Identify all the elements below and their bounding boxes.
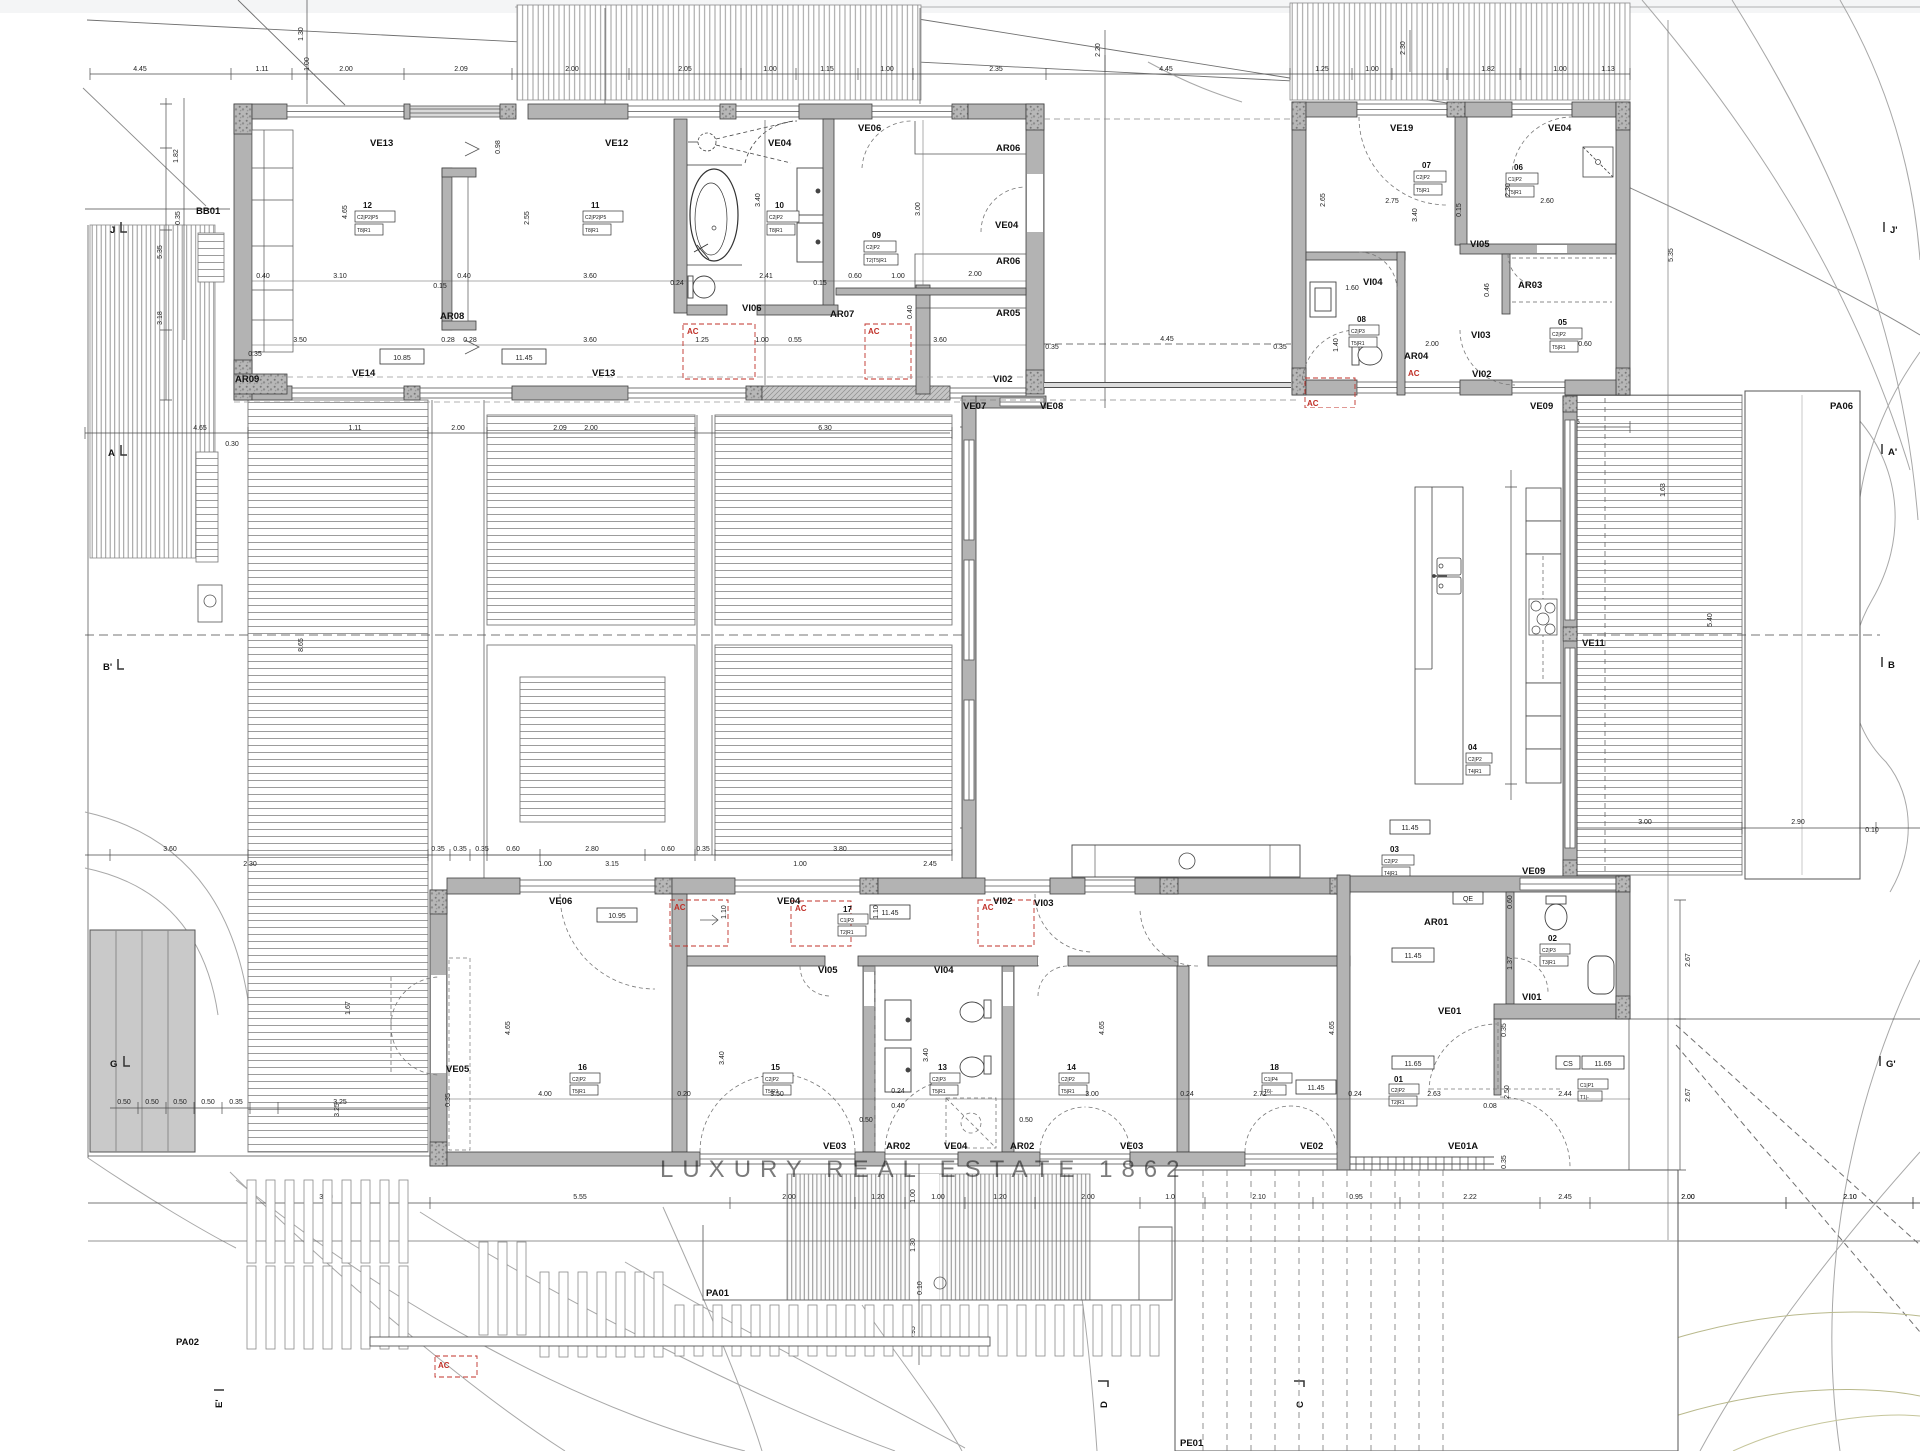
svg-text:0.50: 0.50 — [201, 1099, 215, 1106]
svg-text:T5|R1: T5|R1 — [1416, 188, 1430, 194]
svg-text:1.00: 1.00 — [1553, 66, 1567, 73]
svg-text:3.80: 3.80 — [833, 846, 847, 853]
svg-text:VE01: VE01 — [1438, 1006, 1462, 1017]
svg-text:0.35: 0.35 — [1501, 1023, 1508, 1037]
svg-text:T5|R1: T5|R1 — [572, 1089, 586, 1095]
svg-text:3.60: 3.60 — [163, 846, 177, 853]
svg-text:C2|P2: C2|P2 — [1391, 1088, 1405, 1094]
svg-text:11.45: 11.45 — [1308, 1085, 1325, 1092]
svg-text:1.67: 1.67 — [345, 1001, 352, 1015]
svg-text:VE06: VE06 — [858, 123, 881, 134]
svg-text:4.45: 4.45 — [1160, 336, 1174, 343]
svg-text:AC: AC — [687, 327, 699, 336]
svg-text:2.90: 2.90 — [1791, 819, 1805, 826]
svg-text:AC: AC — [438, 1361, 450, 1370]
svg-text:2.45: 2.45 — [1558, 1194, 1572, 1201]
svg-text:2.00: 2.00 — [584, 425, 598, 432]
svg-text:15: 15 — [771, 1063, 780, 1072]
svg-text:4.65: 4.65 — [1329, 1021, 1336, 1035]
svg-text:VE07: VE07 — [963, 401, 986, 412]
svg-text:AR07: AR07 — [830, 309, 854, 320]
svg-text:8.65: 8.65 — [298, 638, 305, 652]
svg-text:0.60: 0.60 — [661, 846, 675, 853]
svg-text:18: 18 — [1270, 1063, 1279, 1072]
svg-text:2.09: 2.09 — [553, 425, 567, 432]
svg-text:2.41: 2.41 — [759, 273, 773, 280]
svg-text:B: B — [1888, 660, 1895, 671]
svg-text:AR01: AR01 — [1424, 917, 1449, 928]
svg-text:2.80: 2.80 — [585, 846, 599, 853]
svg-text:J: J — [110, 225, 115, 236]
svg-text:1.82: 1.82 — [173, 149, 180, 163]
svg-text:C2|P2: C2|P2 — [572, 1077, 586, 1083]
svg-text:VI04: VI04 — [1363, 277, 1383, 288]
svg-text:2.35: 2.35 — [989, 66, 1003, 73]
svg-text:1.00: 1.00 — [763, 66, 777, 73]
svg-text:0.24: 0.24 — [1348, 1091, 1362, 1098]
svg-text:2.00: 2.00 — [451, 425, 465, 432]
svg-text:J': J' — [1890, 225, 1898, 236]
svg-text:C2|P2: C2|P2 — [1384, 859, 1398, 865]
svg-text:0.28: 0.28 — [463, 337, 477, 344]
svg-text:0.40: 0.40 — [256, 273, 270, 280]
svg-text:10.95: 10.95 — [608, 913, 626, 920]
svg-text:T4|R1: T4|R1 — [1468, 769, 1482, 775]
svg-text:12: 12 — [363, 201, 372, 210]
svg-text:T2|R1: T2|R1 — [1391, 1100, 1405, 1106]
svg-text:1.00: 1.00 — [1365, 66, 1379, 73]
svg-text:VE01A: VE01A — [1448, 1141, 1478, 1152]
svg-text:3.40: 3.40 — [923, 1048, 930, 1062]
svg-text:0.15: 0.15 — [813, 280, 827, 287]
svg-text:VI02: VI02 — [993, 896, 1013, 907]
svg-text:C2|P2: C2|P2 — [1468, 757, 1482, 763]
svg-text:0.60: 0.60 — [1507, 895, 1514, 909]
svg-text:T5|R1: T5|R1 — [932, 1089, 946, 1095]
svg-text:VI03: VI03 — [1471, 330, 1491, 341]
svg-text:T5|R1: T5|R1 — [1061, 1089, 1075, 1095]
svg-text:6.30: 6.30 — [818, 425, 832, 432]
svg-text:AR02: AR02 — [886, 1141, 910, 1152]
svg-text:C1|P4: C1|P4 — [1264, 1077, 1278, 1083]
svg-text:T2|T5|R1: T2|T5|R1 — [866, 258, 887, 264]
svg-text:3.40: 3.40 — [719, 1051, 726, 1065]
svg-text:3.10: 3.10 — [333, 273, 347, 280]
svg-text:3.00: 3.00 — [915, 202, 922, 216]
svg-text:0.60: 0.60 — [1578, 341, 1592, 348]
svg-text:VE03: VE03 — [1120, 1141, 1143, 1152]
svg-text:2.67: 2.67 — [1685, 1088, 1692, 1102]
svg-text:C2|P2: C2|P2 — [769, 215, 783, 221]
svg-text:VI05: VI05 — [1470, 239, 1490, 250]
svg-text:1.10: 1.10 — [721, 905, 728, 919]
svg-text:11.45: 11.45 — [1405, 953, 1422, 960]
svg-text:4.45: 4.45 — [133, 66, 147, 73]
svg-text:T3|R1: T3|R1 — [1542, 960, 1556, 966]
svg-text:3.60: 3.60 — [583, 273, 597, 280]
svg-text:0.08: 0.08 — [1483, 1103, 1497, 1110]
svg-text:0.40: 0.40 — [891, 1103, 905, 1110]
svg-text:T5|R1: T5|R1 — [1351, 341, 1365, 347]
svg-text:0.35: 0.35 — [453, 846, 467, 853]
svg-text:07: 07 — [1422, 161, 1431, 170]
svg-text:11.65: 11.65 — [1405, 1061, 1422, 1068]
svg-text:C2|P3: C2|P3 — [1351, 329, 1365, 335]
svg-text:VE04: VE04 — [995, 220, 1019, 231]
svg-text:0.10: 0.10 — [1865, 827, 1879, 834]
svg-text:AR08: AR08 — [440, 311, 464, 322]
svg-text:0.50: 0.50 — [145, 1099, 159, 1106]
svg-text:2.00: 2.00 — [968, 271, 982, 278]
svg-text:2.63: 2.63 — [1427, 1091, 1441, 1098]
svg-text:2.10: 2.10 — [1843, 1194, 1857, 1201]
svg-text:4.65: 4.65 — [342, 205, 349, 219]
svg-text:VE02: VE02 — [1300, 1141, 1323, 1152]
svg-text:0.28: 0.28 — [441, 337, 455, 344]
svg-text:11.65: 11.65 — [1595, 1061, 1612, 1068]
svg-text:C1|P1: C1|P1 — [1580, 1083, 1594, 1089]
svg-text:3.50: 3.50 — [770, 1091, 784, 1098]
svg-text:AC: AC — [982, 903, 994, 912]
svg-text:0.35: 0.35 — [1045, 344, 1059, 351]
svg-text:VE09: VE09 — [1522, 866, 1545, 877]
svg-text:1.20: 1.20 — [871, 1194, 885, 1201]
svg-text:1.25: 1.25 — [695, 337, 709, 344]
svg-text:0.55: 0.55 — [788, 337, 802, 344]
svg-text:2.50: 2.50 — [1504, 1085, 1511, 1099]
svg-text:VE11: VE11 — [1582, 638, 1605, 649]
svg-text:0.60: 0.60 — [506, 846, 520, 853]
svg-text:1.00: 1.00 — [755, 337, 769, 344]
svg-text:VE03: VE03 — [823, 1141, 846, 1152]
svg-text:1.00: 1.00 — [538, 861, 552, 868]
svg-text:1.11: 1.11 — [255, 66, 268, 73]
svg-text:2.55: 2.55 — [524, 211, 531, 225]
svg-text:AR03: AR03 — [1518, 280, 1542, 291]
svg-text:0.24: 0.24 — [1180, 1091, 1194, 1098]
svg-text:A: A — [108, 448, 115, 459]
svg-text:C2|P3: C2|P3 — [1542, 948, 1556, 954]
svg-text:2.30: 2.30 — [1400, 41, 1407, 55]
svg-text:2.00: 2.00 — [782, 1194, 796, 1201]
svg-text:C2|P2: C2|P2 — [1061, 1077, 1075, 1083]
svg-text:0.35: 0.35 — [1273, 344, 1287, 351]
svg-text:AR05: AR05 — [996, 308, 1021, 319]
svg-text:VI02: VI02 — [993, 374, 1013, 385]
svg-text:11.45: 11.45 — [1402, 825, 1419, 832]
svg-text:0.50: 0.50 — [859, 1117, 873, 1124]
svg-text:VI02: VI02 — [1472, 369, 1492, 380]
svg-text:VE04: VE04 — [768, 138, 792, 149]
svg-text:VE04: VE04 — [944, 1141, 968, 1152]
svg-text:C2|P2|P5: C2|P2|P5 — [357, 215, 378, 221]
svg-text:VE08: VE08 — [1040, 401, 1063, 412]
svg-text:0.20: 0.20 — [677, 1091, 691, 1098]
svg-text:AR04: AR04 — [1404, 351, 1429, 362]
svg-text:0.30: 0.30 — [225, 441, 239, 448]
svg-text:17: 17 — [843, 905, 852, 914]
svg-text:2.00: 2.00 — [565, 66, 579, 73]
svg-text:0.15: 0.15 — [1456, 203, 1463, 217]
svg-text:10: 10 — [775, 201, 784, 210]
svg-text:2.30: 2.30 — [243, 861, 257, 868]
svg-text:VE04: VE04 — [1548, 123, 1572, 134]
svg-text:2.00: 2.00 — [339, 66, 353, 73]
svg-text:1.60: 1.60 — [1345, 285, 1359, 292]
svg-text:PA06: PA06 — [1830, 401, 1853, 412]
svg-text:2.72: 2.72 — [1253, 1091, 1267, 1098]
svg-text:0.98: 0.98 — [495, 140, 502, 154]
svg-text:4.00: 4.00 — [538, 1091, 552, 1098]
svg-text:3.50: 3.50 — [293, 337, 307, 344]
svg-text:1.00: 1.00 — [891, 273, 905, 280]
svg-text:T8|R1: T8|R1 — [769, 228, 783, 234]
svg-text:3.00: 3.00 — [1638, 819, 1652, 826]
svg-text:4.45: 4.45 — [1159, 66, 1173, 73]
svg-text:2.00: 2.00 — [1081, 1194, 1095, 1201]
svg-text:T5|R1: T5|R1 — [1552, 345, 1566, 351]
svg-text:0.35: 0.35 — [696, 846, 710, 853]
svg-text:1.37: 1.37 — [1507, 956, 1514, 970]
svg-text:C2|P2: C2|P2 — [765, 1077, 779, 1083]
svg-text:2.00: 2.00 — [1425, 341, 1439, 348]
svg-text:0.35: 0.35 — [445, 1093, 452, 1107]
svg-text:0.15: 0.15 — [433, 283, 447, 290]
svg-text:BB01: BB01 — [196, 206, 221, 217]
svg-text:PA02: PA02 — [176, 1337, 199, 1348]
svg-text:0.40: 0.40 — [907, 305, 914, 319]
svg-text:06: 06 — [1514, 163, 1523, 172]
svg-text:3.25: 3.25 — [334, 1103, 341, 1117]
svg-text:1.30: 1.30 — [910, 1238, 917, 1252]
svg-text:2.65: 2.65 — [1320, 193, 1327, 207]
svg-text:T8|R1: T8|R1 — [357, 228, 371, 234]
svg-text:3.40: 3.40 — [755, 193, 762, 207]
svg-text:A': A' — [1888, 447, 1897, 458]
svg-text:VI06: VI06 — [742, 303, 762, 314]
svg-text:2.75: 2.75 — [1385, 198, 1399, 205]
svg-text:3.40: 3.40 — [1412, 208, 1419, 222]
svg-text:C2|P3: C2|P3 — [932, 1077, 946, 1083]
svg-text:B': B' — [103, 662, 112, 673]
svg-text:2.60: 2.60 — [1540, 198, 1554, 205]
svg-text:AR02: AR02 — [1010, 1141, 1034, 1152]
svg-text:C2|P2|P5: C2|P2|P5 — [585, 215, 606, 221]
svg-text:1.00: 1.00 — [880, 66, 894, 73]
svg-text:3.60: 3.60 — [583, 337, 597, 344]
svg-text:0.46: 0.46 — [1484, 283, 1491, 297]
svg-text:1.20: 1.20 — [993, 1194, 1007, 1201]
svg-text:5.55: 5.55 — [573, 1194, 587, 1201]
svg-text:AR06: AR06 — [996, 256, 1020, 267]
svg-text:0.24: 0.24 — [670, 280, 684, 287]
svg-text:11.45: 11.45 — [882, 910, 899, 917]
svg-text:3.60: 3.60 — [933, 337, 947, 344]
svg-text:VE13: VE13 — [370, 138, 393, 149]
svg-text:0.40: 0.40 — [457, 273, 471, 280]
svg-text:C1|P3: C1|P3 — [840, 918, 854, 924]
svg-text:3.00: 3.00 — [1085, 1091, 1099, 1098]
svg-text:CS: CS — [1563, 1061, 1573, 1068]
svg-text:0.35: 0.35 — [248, 351, 262, 358]
svg-text:E': E' — [214, 1399, 225, 1408]
svg-text:2.22: 2.22 — [1463, 1194, 1477, 1201]
svg-text:1.00: 1.00 — [304, 57, 311, 71]
svg-text:QE: QE — [1463, 896, 1473, 903]
svg-text:09: 09 — [872, 231, 881, 240]
svg-text:0.35: 0.35 — [431, 846, 445, 853]
svg-text:VE04: VE04 — [777, 896, 801, 907]
svg-text:VI03: VI03 — [1034, 898, 1054, 909]
svg-text:2.30: 2.30 — [1505, 183, 1512, 197]
svg-text:0.24: 0.24 — [891, 1088, 905, 1095]
svg-text:AC: AC — [1408, 369, 1420, 378]
svg-text:13: 13 — [938, 1063, 947, 1072]
svg-text:2.20: 2.20 — [1095, 43, 1102, 57]
svg-text:VI05: VI05 — [818, 965, 838, 976]
svg-text:1.82: 1.82 — [1481, 66, 1495, 73]
svg-text:1.25: 1.25 — [1315, 66, 1329, 73]
svg-text:04: 04 — [1468, 743, 1477, 752]
svg-text:0.50: 0.50 — [1019, 1117, 1033, 1124]
svg-text:1.15: 1.15 — [820, 66, 834, 73]
svg-text:LUXURY REAL ESTATE 1862: LUXURY REAL ESTATE 1862 — [660, 1156, 1188, 1183]
svg-text:1.00: 1.00 — [793, 861, 807, 868]
svg-text:T1|-: T1|- — [1580, 1095, 1589, 1101]
svg-text:C2|P2: C2|P2 — [1552, 332, 1566, 338]
svg-text:PE01: PE01 — [1180, 1438, 1204, 1449]
svg-text:AC: AC — [1307, 399, 1319, 408]
svg-text:2.44: 2.44 — [1558, 1091, 1572, 1098]
svg-text:1.00: 1.00 — [931, 1194, 945, 1201]
svg-text:0.95: 0.95 — [1349, 1194, 1363, 1201]
svg-text:VE06: VE06 — [549, 896, 572, 907]
svg-text:5.35: 5.35 — [1668, 248, 1675, 262]
svg-text:2.00: 2.00 — [1681, 1194, 1695, 1201]
svg-text:VI01: VI01 — [1522, 992, 1542, 1003]
svg-text:5.35: 5.35 — [157, 245, 164, 259]
svg-text:14: 14 — [1067, 1063, 1076, 1072]
svg-text:0.35: 0.35 — [175, 211, 182, 225]
svg-text:PA01: PA01 — [706, 1288, 730, 1299]
svg-text:G': G' — [1886, 1059, 1896, 1070]
svg-text:3.18: 3.18 — [157, 311, 164, 325]
svg-text:AR09: AR09 — [235, 374, 259, 385]
svg-text:2.05: 2.05 — [678, 66, 692, 73]
svg-text:3.15: 3.15 — [605, 861, 619, 868]
svg-text:16: 16 — [578, 1063, 587, 1072]
svg-text:0.35: 0.35 — [229, 1099, 243, 1106]
svg-text:VE12: VE12 — [605, 138, 628, 149]
svg-text:AR06: AR06 — [996, 143, 1020, 154]
svg-text:0.35: 0.35 — [1501, 1155, 1508, 1169]
svg-text:10.85: 10.85 — [393, 355, 411, 362]
svg-text:VI04: VI04 — [934, 965, 954, 976]
svg-text:1.63: 1.63 — [1660, 483, 1667, 497]
svg-text:VE05: VE05 — [446, 1064, 470, 1075]
svg-text:0.35: 0.35 — [475, 846, 489, 853]
svg-text:1.10: 1.10 — [873, 905, 880, 919]
svg-text:2.09: 2.09 — [454, 66, 468, 73]
svg-text:2.67: 2.67 — [1685, 953, 1692, 967]
svg-text:0.50: 0.50 — [173, 1099, 187, 1106]
svg-text:D: D — [1099, 1401, 1110, 1408]
svg-text:03: 03 — [1390, 845, 1399, 854]
svg-text:01: 01 — [1394, 1075, 1403, 1084]
svg-text:1.13: 1.13 — [1601, 66, 1615, 73]
svg-text:C2|P2: C2|P2 — [1416, 175, 1430, 181]
svg-text:0.10: 0.10 — [917, 1281, 924, 1295]
svg-text:G: G — [110, 1059, 117, 1070]
svg-text:0.60: 0.60 — [848, 273, 862, 280]
svg-text:08: 08 — [1357, 315, 1366, 324]
svg-text:4.65: 4.65 — [193, 425, 207, 432]
svg-text:VE09: VE09 — [1530, 401, 1553, 412]
svg-text:1.30: 1.30 — [298, 27, 305, 41]
svg-text:AC: AC — [868, 327, 880, 336]
svg-text:02: 02 — [1548, 934, 1557, 943]
svg-text:2.10: 2.10 — [1252, 1194, 1266, 1201]
svg-text:5.40: 5.40 — [1707, 613, 1714, 627]
svg-text:AC: AC — [674, 903, 686, 912]
svg-text:T2|R1: T2|R1 — [840, 930, 854, 936]
svg-text:4.65: 4.65 — [505, 1021, 512, 1035]
svg-text:11.45: 11.45 — [516, 355, 533, 362]
svg-text:1.40: 1.40 — [1333, 338, 1340, 352]
svg-text:VE19: VE19 — [1390, 123, 1413, 134]
svg-text:C: C — [1295, 1401, 1306, 1408]
svg-text:11: 11 — [591, 201, 600, 210]
svg-text:4.65: 4.65 — [1099, 1021, 1106, 1035]
svg-text:05: 05 — [1558, 318, 1567, 327]
svg-text:2.45: 2.45 — [923, 861, 937, 868]
svg-text:T8|R1: T8|R1 — [585, 228, 599, 234]
svg-text:C1|P2: C1|P2 — [1508, 177, 1522, 183]
svg-text:0.50: 0.50 — [117, 1099, 131, 1106]
svg-text:1.11: 1.11 — [348, 425, 361, 432]
svg-text:1.00: 1.00 — [910, 1189, 917, 1203]
svg-text:C2|P2: C2|P2 — [866, 245, 880, 251]
